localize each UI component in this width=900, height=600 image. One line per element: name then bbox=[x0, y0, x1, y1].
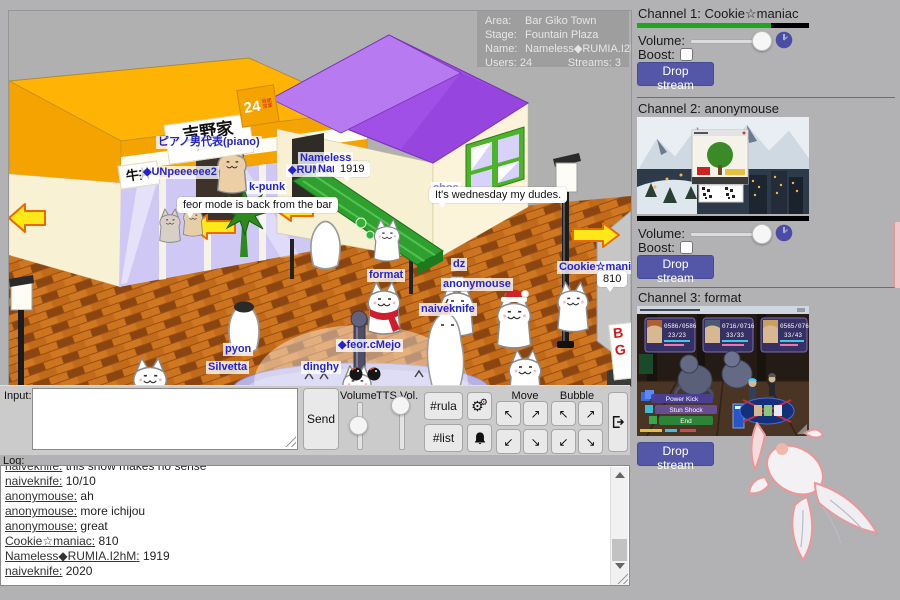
snow-village-scene bbox=[637, 117, 809, 214]
channel-1-title: Channel 1: Cookie☆maniac bbox=[638, 6, 799, 22]
volume-slider-thumb[interactable] bbox=[349, 416, 368, 435]
volume-label: Volume bbox=[340, 390, 377, 402]
svg-text:0586/0586: 0586/0586 bbox=[664, 323, 697, 330]
svg-text:33/43: 33/43 bbox=[784, 332, 802, 339]
goldfish-fin-edge bbox=[893, 222, 900, 288]
player-label-pyon: pyon bbox=[223, 343, 253, 356]
name-value: Nameless◆RUMIA.I2hM bbox=[525, 42, 632, 56]
channel-1-volume-thumb[interactable] bbox=[752, 31, 772, 51]
log-scrollbar[interactable] bbox=[610, 467, 628, 585]
log-row: naiveknife 10/10 bbox=[5, 474, 629, 489]
svg-text:0716/0716: 0716/0716 bbox=[722, 323, 755, 330]
hours-sign: 24 時間営業 bbox=[236, 84, 279, 127]
scroll-down-arrow[interactable] bbox=[615, 563, 625, 569]
move-up-right-button[interactable]: ↗ bbox=[523, 401, 548, 426]
log-row: naiveknife 2020 bbox=[5, 564, 629, 579]
log-row: anonymouse great bbox=[5, 519, 629, 534]
rula-button[interactable]: #rula bbox=[424, 392, 463, 420]
player-label-dinghy: dinghy bbox=[301, 361, 341, 374]
channel-1-progress bbox=[637, 23, 809, 28]
gear-icon-small: ⚙ bbox=[480, 397, 488, 408]
log-row: Cookie☆maniac 810 bbox=[5, 534, 629, 549]
input-label: Input: bbox=[4, 390, 32, 402]
overlay-window bbox=[692, 130, 748, 184]
player-label-piano: ピアノ男代表(piano) bbox=[156, 136, 262, 149]
player-label-silvetta: Silvetta bbox=[206, 361, 249, 374]
game-canvas[interactable]: 牛丼 吉野家 yoshinoya 24 時間営業 B G ピアノ男代表(pian… bbox=[8, 10, 632, 387]
channel-2-drop-button[interactable]: Drop stream bbox=[637, 255, 714, 279]
log-row: naiveknife this show makes no sense bbox=[5, 465, 629, 474]
log-row: anonymouse more ichijou bbox=[5, 504, 629, 519]
logout-button[interactable] bbox=[608, 392, 628, 452]
channel-1-volume-knob-icon[interactable] bbox=[775, 31, 793, 49]
channel-2-video-thumbnail[interactable] bbox=[637, 117, 809, 214]
channel-1-volume-label: Volume: bbox=[638, 33, 685, 48]
list-button[interactable]: #list bbox=[424, 424, 463, 452]
channel-1-boost-label: Boost: bbox=[638, 47, 675, 62]
stage-value: Fountain Plaza bbox=[525, 28, 598, 42]
goldfish-doodle bbox=[735, 415, 895, 565]
move-up-left-button[interactable]: ↖ bbox=[496, 401, 521, 426]
svg-text:23/23: 23/23 bbox=[668, 332, 686, 339]
channel-2-title: Channel 2: anonymouse bbox=[638, 101, 779, 116]
channel-2-boost-label: Boost: bbox=[638, 240, 675, 255]
control-panel: Input: Send Volume TTS Vol. #rula #list … bbox=[0, 385, 630, 455]
settings-button[interactable]: ⚙⚙ bbox=[467, 392, 492, 420]
bubble-up-left-button[interactable]: ↖ bbox=[551, 401, 576, 426]
channel-2-boost-checkbox[interactable] bbox=[680, 241, 693, 254]
speech-bubble-feor-bar: feor mode is back from the bar bbox=[177, 197, 338, 213]
bubble-down-right-button[interactable]: ↘ bbox=[578, 429, 603, 454]
player-label-kpunk: k-punk bbox=[247, 181, 287, 194]
player-label-naiveknife: naiveknife bbox=[419, 303, 477, 316]
stream-sidebar: Channel 1: Cookie☆maniac Volume: Boost: … bbox=[630, 0, 900, 600]
users-count: 24 bbox=[520, 57, 532, 69]
speech-bubble-810: 810 bbox=[597, 271, 627, 287]
speech-bubble-1919: 1919 bbox=[334, 161, 370, 177]
channel-2-volume-thumb[interactable] bbox=[752, 224, 772, 244]
channel-3-drop-button[interactable]: Drop stream bbox=[637, 442, 714, 466]
svg-text:Stun Shock: Stun Shock bbox=[669, 407, 703, 414]
divider bbox=[637, 287, 895, 288]
divider bbox=[637, 97, 895, 98]
app-window: 牛丼 吉野家 yoshinoya 24 時間営業 B G ピアノ男代表(pian… bbox=[0, 0, 900, 600]
channel-2-volume-label: Volume: bbox=[638, 226, 685, 241]
svg-text:End: End bbox=[680, 418, 692, 425]
anonymouse-cat bbox=[497, 289, 530, 347]
bell-icon bbox=[473, 431, 487, 446]
player-label-dz: dz bbox=[451, 258, 467, 271]
logout-icon bbox=[611, 415, 625, 429]
channel-2-volume-knob-icon[interactable] bbox=[775, 224, 793, 242]
bubble-down-left-button[interactable]: ↙ bbox=[551, 429, 576, 454]
streams-count: 3 bbox=[615, 57, 621, 69]
scroll-up-arrow[interactable] bbox=[615, 472, 625, 478]
move-down-right-button[interactable]: ↘ bbox=[523, 429, 548, 454]
bubble-up-right-button[interactable]: ↗ bbox=[578, 401, 603, 426]
ghost-character bbox=[311, 222, 340, 269]
tts-slider-thumb[interactable] bbox=[391, 396, 410, 415]
player-label-unpeeeeee2: ◆UNpeeeeee2 bbox=[141, 166, 219, 179]
player-label-format: format bbox=[367, 269, 405, 282]
scroll-thumb[interactable] bbox=[612, 539, 627, 561]
chat-log[interactable]: naiveknife this show makes no sense naiv… bbox=[0, 465, 630, 586]
channel-3-title: Channel 3: format bbox=[638, 290, 741, 305]
player-label-anonymouse: anonymouse bbox=[441, 278, 513, 291]
svg-text:0565/0763: 0565/0763 bbox=[780, 323, 809, 330]
channel-1-boost-checkbox[interactable] bbox=[680, 48, 693, 61]
player-label-feor: ◆feor.cMejo bbox=[336, 339, 403, 352]
channel-1-drop-button[interactable]: Drop stream bbox=[637, 62, 714, 86]
speech-bubble-wednesday: It's wednesday my dudes. bbox=[429, 187, 567, 203]
svg-text:33/33: 33/33 bbox=[726, 332, 744, 339]
log-row: Nameless◆RUMIA.I2hM 1919 bbox=[5, 549, 629, 564]
send-button[interactable]: Send bbox=[303, 388, 339, 450]
chat-input[interactable] bbox=[32, 388, 298, 450]
channel-2-progress bbox=[637, 216, 809, 221]
room-info-box: Area:Bar Giko Town Stage:Fountain Plaza … bbox=[477, 11, 629, 67]
log-row: anonymouse ah bbox=[5, 489, 629, 504]
svg-text:Power Kick: Power Kick bbox=[666, 396, 699, 403]
move-down-left-button[interactable]: ↙ bbox=[496, 429, 521, 454]
area-value: Bar Giko Town bbox=[525, 14, 596, 28]
log-section: Log: naiveknife this show makes no sense… bbox=[0, 455, 630, 586]
notification-button[interactable] bbox=[467, 424, 492, 452]
